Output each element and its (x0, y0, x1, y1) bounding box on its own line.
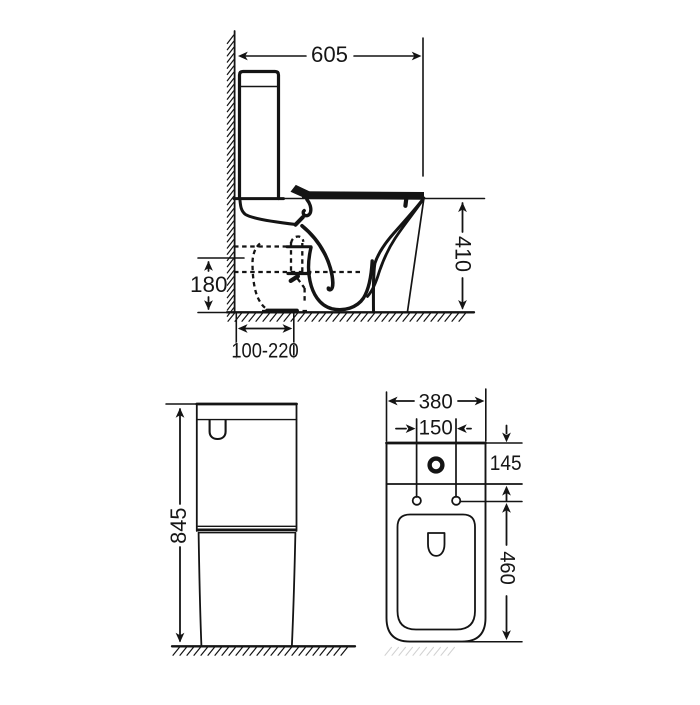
svg-text:410: 410 (450, 236, 475, 272)
svg-text:460: 460 (495, 551, 518, 585)
svg-text:150: 150 (419, 416, 453, 440)
svg-text:845: 845 (166, 508, 191, 544)
svg-text:180: 180 (190, 272, 228, 297)
svg-text:380: 380 (419, 390, 453, 414)
svg-text:605: 605 (311, 42, 348, 67)
svg-text:100-220: 100-220 (231, 340, 298, 363)
svg-text:145: 145 (490, 452, 522, 475)
